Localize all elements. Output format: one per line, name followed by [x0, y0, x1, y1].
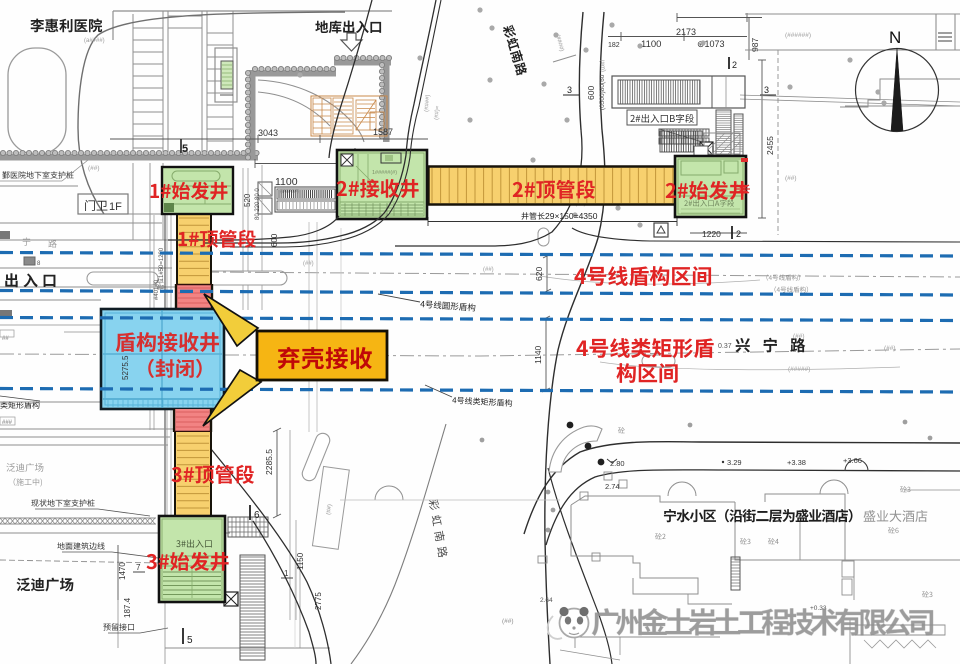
- svg-text:(0500)80(60: (0500)80(60: [599, 74, 606, 110]
- svg-text:2: 2: [732, 60, 737, 70]
- svg-text:600: 600: [270, 233, 279, 247]
- svg-text:3.29: 3.29: [727, 458, 742, 467]
- svg-text:(##): (##): [785, 175, 797, 182]
- svg-text:6: 6: [254, 510, 260, 521]
- svg-text:0.37: 0.37: [718, 343, 732, 350]
- svg-text:3: 3: [764, 85, 769, 95]
- svg-text:5: 5: [182, 143, 188, 155]
- svg-text:1100: 1100: [275, 176, 298, 188]
- svg-text:(a####): (a####): [84, 38, 105, 44]
- svg-text:N: N: [889, 28, 901, 47]
- svg-text:(##): (##): [793, 333, 805, 340]
- svg-text:620: 620: [534, 267, 544, 281]
- svg-text:3043: 3043: [258, 128, 278, 138]
- svg-text:1220: 1220: [702, 229, 721, 239]
- svg-text:(##): (##): [502, 618, 514, 625]
- svg-text:2.74: 2.74: [605, 482, 620, 491]
- svg-text:1150: 1150: [296, 552, 305, 570]
- svg-text:1F: 1F: [109, 201, 122, 213]
- svg-text:7: 7: [136, 563, 141, 572]
- svg-text:600: 600: [586, 86, 596, 100]
- svg-text:(##): (##): [884, 345, 896, 352]
- svg-text:5275.5: 5275.5: [121, 355, 130, 380]
- svg-text:2.80: 2.80: [610, 459, 625, 468]
- svg-text:(######): (######): [785, 32, 811, 39]
- svg-text:1#####(#): 1#####(#): [372, 170, 397, 176]
- svg-text:182: 182: [608, 42, 620, 49]
- svg-text:5: 5: [187, 635, 193, 646]
- svg-text:1470: 1470: [118, 562, 127, 580]
- svg-text:1100: 1100: [641, 39, 661, 50]
- svg-text:187.4: 187.4: [123, 597, 132, 618]
- svg-text:1587: 1587: [373, 127, 393, 137]
- svg-text:#401#0: #401#0: [154, 279, 160, 300]
- svg-text:80 220 80 0: 80 220 80 0: [255, 188, 261, 220]
- svg-text:+3.66: +3.66: [843, 456, 862, 465]
- svg-text:2173: 2173: [676, 27, 696, 37]
- svg-text:29×150=4350: 29×150=4350: [545, 211, 598, 221]
- svg-text:+3.38: +3.38: [787, 458, 806, 467]
- svg-text:(##)=: (##)=: [434, 105, 441, 120]
- svg-text:2285.5: 2285.5: [264, 449, 274, 475]
- svg-text:2: 2: [736, 229, 741, 239]
- svg-text:(##): (##): [483, 267, 494, 273]
- svg-text:2455: 2455: [765, 136, 775, 155]
- svg-text:(##): (##): [88, 165, 100, 172]
- svg-text:2.64: 2.64: [540, 597, 553, 604]
- svg-text:3: 3: [567, 85, 572, 95]
- svg-text:520: 520: [243, 193, 252, 207]
- svg-text:(##): (##): [303, 261, 314, 267]
